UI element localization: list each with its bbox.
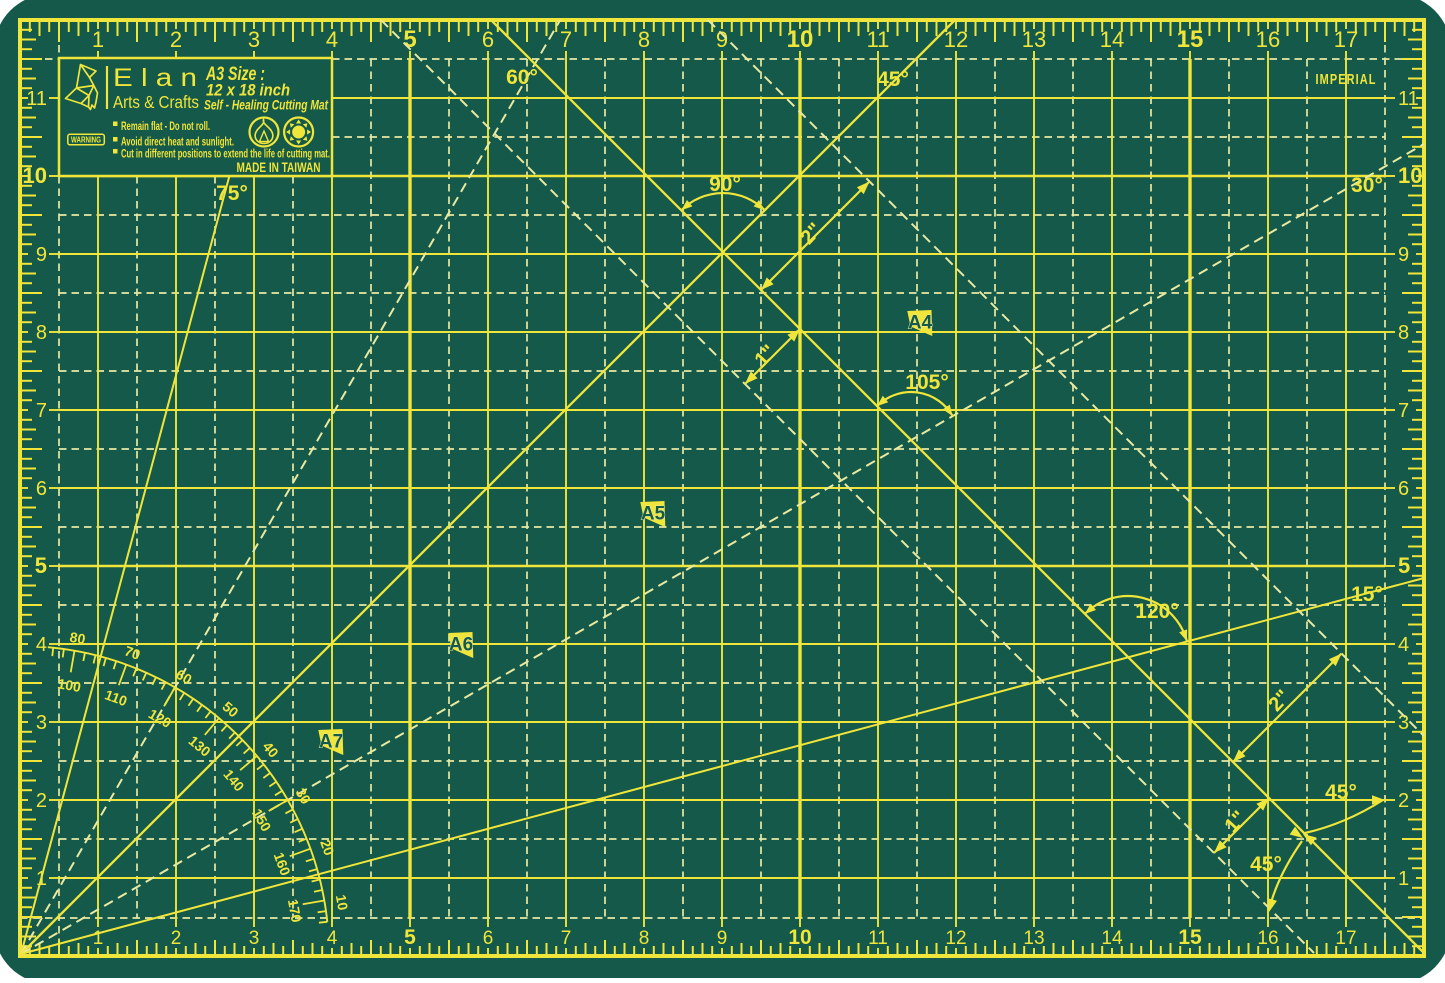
- svg-text:3: 3: [248, 27, 260, 52]
- svg-text:105°: 105°: [905, 371, 948, 394]
- svg-text:2: 2: [1398, 790, 1409, 812]
- svg-text:A5: A5: [641, 504, 666, 525]
- svg-text:7: 7: [561, 928, 572, 949]
- svg-text:12: 12: [945, 928, 966, 949]
- svg-text:9: 9: [36, 244, 47, 266]
- svg-text:1: 1: [92, 27, 104, 52]
- svg-text:10: 10: [787, 26, 814, 53]
- svg-text:8: 8: [638, 27, 650, 52]
- svg-text:7: 7: [36, 400, 47, 422]
- svg-text:11: 11: [867, 27, 890, 52]
- svg-text:6: 6: [36, 478, 47, 500]
- svg-text:5: 5: [404, 926, 416, 949]
- svg-text:6: 6: [483, 928, 494, 949]
- svg-text:4: 4: [1398, 634, 1409, 656]
- svg-text:9: 9: [1398, 244, 1409, 266]
- svg-text:1: 1: [1398, 868, 1409, 890]
- svg-text:A6: A6: [449, 635, 473, 656]
- svg-text:75°: 75°: [216, 182, 248, 205]
- svg-text:10: 10: [23, 163, 47, 188]
- svg-text:15°: 15°: [1351, 583, 1383, 606]
- svg-text:14: 14: [1101, 928, 1123, 949]
- svg-text:7: 7: [560, 27, 572, 52]
- svg-text:E l a n: E l a n: [113, 64, 197, 92]
- svg-text:4: 4: [327, 928, 338, 949]
- svg-text:IMPERIAL: IMPERIAL: [1316, 71, 1377, 88]
- svg-text:10: 10: [788, 926, 811, 949]
- svg-text:4: 4: [36, 634, 47, 656]
- svg-text:1: 1: [93, 928, 104, 949]
- svg-text:10: 10: [333, 893, 351, 911]
- svg-text:2: 2: [36, 790, 47, 812]
- svg-text:17: 17: [1335, 928, 1356, 949]
- svg-text:17: 17: [1334, 27, 1358, 52]
- svg-text:3: 3: [36, 712, 47, 734]
- svg-text:45°: 45°: [1250, 853, 1282, 876]
- svg-text:2: 2: [170, 27, 182, 52]
- svg-text:120°: 120°: [1135, 600, 1178, 623]
- svg-text:60°: 60°: [506, 66, 538, 89]
- svg-text:2: 2: [171, 928, 182, 949]
- svg-text:14: 14: [1100, 27, 1124, 52]
- svg-text:8: 8: [1398, 322, 1409, 344]
- svg-text:Remain flat - Do not roll.: Remain flat - Do not roll.: [121, 119, 210, 133]
- svg-text:A4: A4: [908, 313, 933, 334]
- svg-text:8: 8: [639, 928, 650, 949]
- svg-text:16: 16: [1257, 928, 1278, 949]
- svg-text:16: 16: [1256, 27, 1280, 52]
- svg-text:13: 13: [1023, 928, 1044, 949]
- svg-text:11: 11: [1398, 88, 1419, 110]
- svg-text:10: 10: [1398, 163, 1422, 188]
- svg-text:11: 11: [868, 928, 888, 949]
- svg-text:A7: A7: [319, 732, 343, 753]
- svg-text:45°: 45°: [877, 68, 909, 91]
- svg-text:45°: 45°: [1325, 781, 1357, 804]
- svg-text:15: 15: [1178, 926, 1202, 949]
- svg-text:5: 5: [35, 553, 47, 578]
- svg-text:Self - Healing Cutting Mat: Self - Healing Cutting Mat: [204, 98, 328, 113]
- svg-text:4: 4: [326, 27, 338, 52]
- svg-text:WARNING: WARNING: [71, 134, 101, 144]
- svg-text:30°: 30°: [1351, 174, 1383, 197]
- svg-text:9: 9: [717, 928, 728, 949]
- svg-text:MADE IN TAIWAN: MADE IN TAIWAN: [237, 160, 321, 175]
- svg-text:11: 11: [26, 88, 47, 110]
- svg-text:90°: 90°: [709, 173, 741, 196]
- svg-text:6: 6: [482, 27, 494, 52]
- svg-text:6: 6: [1398, 478, 1409, 500]
- svg-text:Arts & Crafts: Arts & Crafts: [113, 92, 199, 112]
- svg-text:5: 5: [1398, 553, 1410, 578]
- svg-text:80: 80: [69, 629, 87, 647]
- svg-text:Cut in different positions to: Cut in different positions to extend the…: [121, 147, 330, 161]
- svg-text:7: 7: [1398, 400, 1409, 422]
- svg-text:15: 15: [1177, 26, 1204, 53]
- svg-text:3: 3: [249, 928, 260, 949]
- svg-text:12: 12: [944, 27, 968, 52]
- svg-text:13: 13: [1022, 27, 1046, 52]
- svg-text:8: 8: [36, 322, 47, 344]
- svg-text:9: 9: [716, 27, 728, 52]
